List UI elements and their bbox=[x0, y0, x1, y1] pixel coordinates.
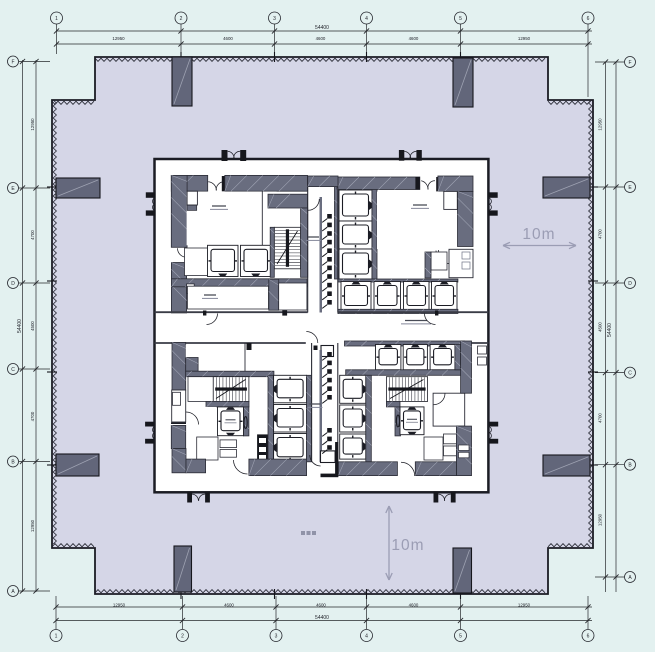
svg-text:12950: 12950 bbox=[30, 519, 35, 532]
svg-text:F: F bbox=[628, 60, 631, 66]
svg-text:D: D bbox=[11, 281, 15, 287]
svg-text:12950: 12950 bbox=[518, 36, 531, 41]
svg-text:4600: 4600 bbox=[224, 603, 234, 608]
svg-text:54400: 54400 bbox=[607, 323, 613, 337]
svg-text:10m: 10m bbox=[522, 226, 555, 243]
svg-text:4600: 4600 bbox=[316, 603, 326, 608]
svg-text:4500: 4500 bbox=[30, 321, 35, 331]
svg-text:4600: 4600 bbox=[316, 36, 326, 41]
svg-text:1: 1 bbox=[55, 634, 58, 640]
svg-text:4600: 4600 bbox=[223, 36, 233, 41]
svg-text:12950: 12950 bbox=[598, 513, 603, 526]
svg-text:12950: 12950 bbox=[113, 603, 126, 608]
svg-text:5: 5 bbox=[459, 634, 462, 640]
svg-text:C: C bbox=[11, 367, 15, 373]
svg-text:4500: 4500 bbox=[598, 322, 603, 332]
svg-text:D: D bbox=[628, 281, 632, 287]
svg-text:54400: 54400 bbox=[17, 319, 23, 333]
svg-text:12950: 12950 bbox=[112, 36, 125, 41]
svg-text:10m: 10m bbox=[391, 537, 424, 554]
svg-text:4700: 4700 bbox=[30, 411, 35, 421]
svg-text:12950: 12950 bbox=[518, 603, 531, 608]
svg-text:3: 3 bbox=[275, 634, 278, 640]
svg-text:12950: 12950 bbox=[30, 118, 35, 131]
svg-text:F: F bbox=[11, 60, 14, 66]
svg-text:1: 1 bbox=[55, 16, 58, 22]
svg-text:4: 4 bbox=[365, 16, 368, 22]
svg-text:2: 2 bbox=[180, 16, 183, 22]
svg-text:12950: 12950 bbox=[598, 118, 603, 131]
svg-text:4700: 4700 bbox=[30, 230, 35, 240]
svg-text:4700: 4700 bbox=[598, 413, 603, 423]
svg-text:4700: 4700 bbox=[598, 229, 603, 239]
svg-text:3: 3 bbox=[273, 16, 276, 22]
svg-text:4600: 4600 bbox=[409, 603, 419, 608]
svg-text:54400: 54400 bbox=[315, 25, 329, 31]
svg-text:54400: 54400 bbox=[315, 615, 329, 621]
svg-text:5: 5 bbox=[459, 16, 462, 22]
svg-text:6: 6 bbox=[587, 634, 590, 640]
svg-text:C: C bbox=[628, 371, 632, 377]
svg-text:4: 4 bbox=[365, 634, 368, 640]
svg-text:4600: 4600 bbox=[409, 36, 419, 41]
svg-text:2: 2 bbox=[181, 634, 184, 640]
svg-text:6: 6 bbox=[587, 16, 590, 22]
